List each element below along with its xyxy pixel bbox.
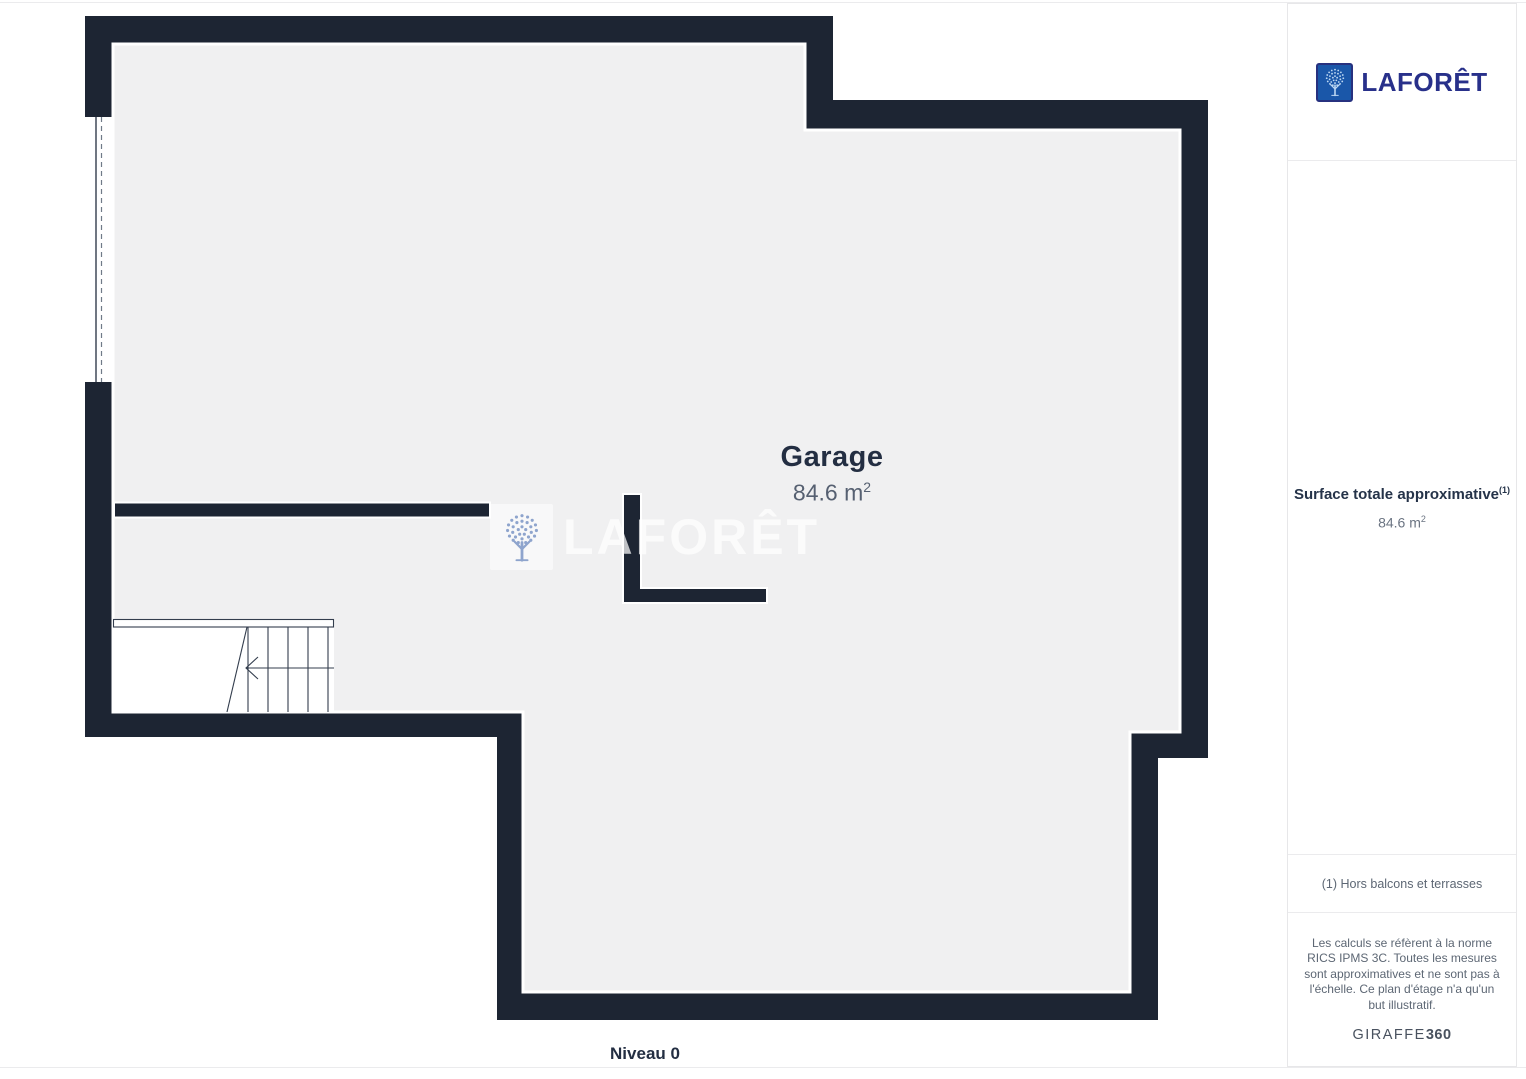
room-area-value: 84.6 m bbox=[793, 480, 863, 506]
interior-wall-horizontal bbox=[114, 503, 490, 518]
giraffe360-suffix: 360 bbox=[1426, 1027, 1452, 1043]
surface-value-sup: 2 bbox=[1421, 514, 1426, 524]
room-area-sup: 2 bbox=[863, 479, 871, 495]
level-label: Niveau 0 bbox=[610, 1044, 680, 1064]
legal-disclaimer: Les calculs se réfèrent à la norme RICS … bbox=[1301, 936, 1503, 1014]
surface-total-title: Surface totale approximative(1) bbox=[1294, 485, 1510, 503]
sidebar-footnote-section: (1) Hors balcons et terrasses bbox=[1288, 855, 1516, 913]
window-opening bbox=[85, 117, 113, 382]
laforet-logo: LAFORÊT bbox=[1316, 63, 1487, 102]
surface-title-sup: (1) bbox=[1499, 485, 1510, 495]
giraffe360-brand: GIRAFFE bbox=[1352, 1027, 1425, 1043]
sidebar-legal-section: Les calculs se réfèrent à la norme RICS … bbox=[1288, 913, 1516, 1066]
floor-plan-drawing bbox=[0, 0, 1286, 1079]
footnote-text: (1) Hors balcons et terrasses bbox=[1322, 877, 1482, 891]
laforet-tree-icon bbox=[1316, 63, 1353, 102]
room-name: Garage bbox=[781, 441, 884, 474]
floor-plan: LAFORÊT Garage 84.6 m2 Niveau 0 bbox=[0, 0, 1286, 1079]
floor-plan-page: { "plan": { "room": { "name": "Garage", … bbox=[0, 0, 1526, 1079]
laforet-wordmark: LAFORÊT bbox=[1361, 67, 1487, 98]
surface-value-text: 84.6 m bbox=[1378, 514, 1421, 530]
room-area: 84.6 m2 bbox=[781, 479, 884, 507]
staircase bbox=[113, 619, 334, 712]
info-sidebar: LAFORÊT Surface totale approximative(1) … bbox=[1287, 3, 1517, 1067]
room-label: Garage 84.6 m2 bbox=[781, 441, 884, 507]
surface-title-text: Surface totale approximative bbox=[1294, 486, 1499, 503]
giraffe360-credit: GIRAFFE360 bbox=[1352, 1027, 1451, 1043]
sidebar-surface-section: Surface totale approximative(1) 84.6 m2 bbox=[1288, 161, 1516, 855]
surface-total-value: 84.6 m2 bbox=[1378, 514, 1426, 531]
sidebar-logo-section: LAFORÊT bbox=[1288, 4, 1516, 161]
